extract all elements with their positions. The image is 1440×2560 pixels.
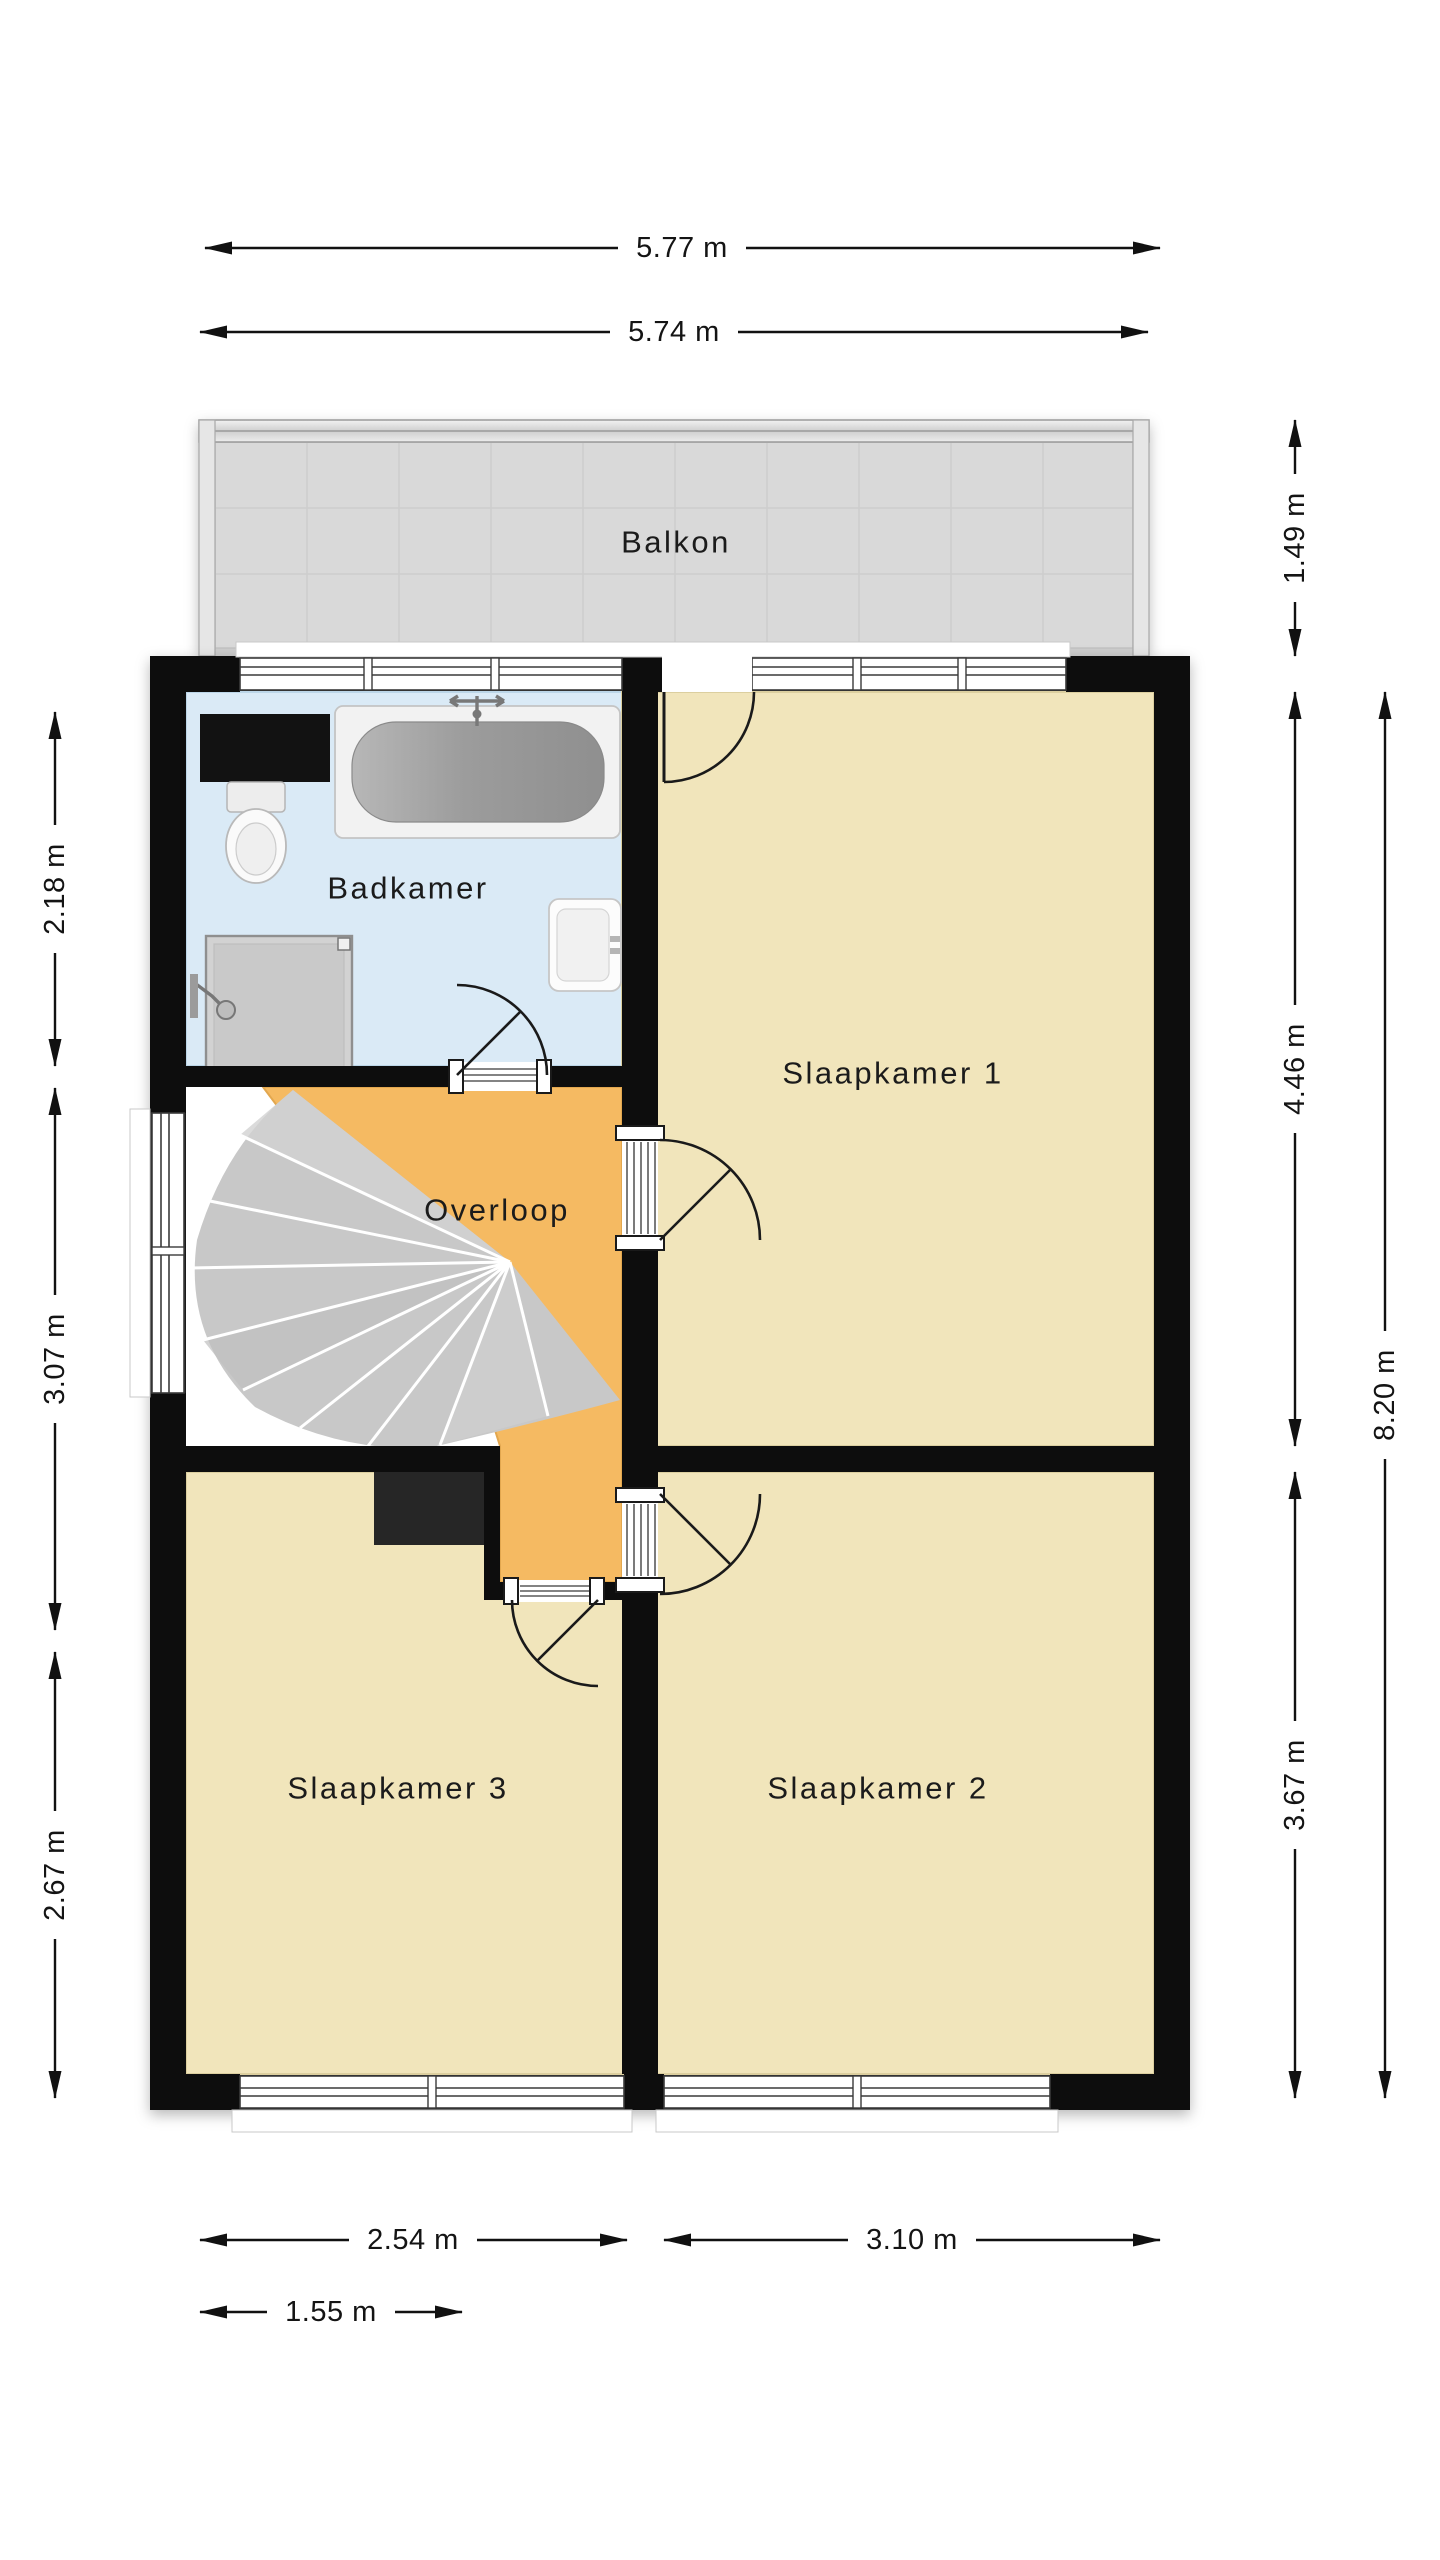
bathroom-counter xyxy=(200,714,330,782)
dimension-bottom-bedroom2: 3.10 m xyxy=(664,2221,1160,2259)
window-bottom-left xyxy=(232,2076,632,2132)
window-top-left xyxy=(240,658,622,690)
window-top-right xyxy=(752,658,1066,690)
dimension-right-bedroom1: 4.46 m xyxy=(1276,692,1314,1446)
dimension-label-bottom-stairwell: 1.55 m xyxy=(285,2296,377,2328)
dimension-left-bedroom3: 2.67 m xyxy=(36,1652,74,2098)
dimension-right-total: 8.20 m xyxy=(1366,692,1404,2098)
dimension-label-right-bedroom2: 3.67 m xyxy=(1279,1739,1311,1831)
floorplan-page: Balkon xyxy=(0,0,1440,2560)
dimension-label-right-balcony: 1.49 m xyxy=(1279,492,1311,584)
dimension-bottom-stairwell: 1.55 m xyxy=(200,2293,462,2331)
window-bottom-right xyxy=(656,2076,1058,2132)
shower-icon xyxy=(190,936,352,1082)
window-sill-top xyxy=(236,642,1070,657)
room-label-bedroom3: Slaapkamer 3 xyxy=(287,1771,508,1806)
dimension-label-top-outer: 5.77 m xyxy=(636,232,728,264)
dimension-label-right-bedroom1: 4.46 m xyxy=(1279,1023,1311,1115)
bathtub-icon xyxy=(335,696,620,838)
toilet-icon xyxy=(226,782,286,883)
room-label-bedroom1: Slaapkamer 1 xyxy=(782,1056,1003,1091)
dimension-right-bedroom2: 3.67 m xyxy=(1276,1472,1314,2098)
room-label-landing: Overloop xyxy=(424,1193,570,1228)
dimension-label-right-total: 8.20 m xyxy=(1369,1349,1401,1441)
dimension-label-bottom-bedroom3: 2.54 m xyxy=(367,2224,459,2256)
dimension-left-bathroom: 2.18 m xyxy=(36,712,74,1066)
dimension-right-balcony: 1.49 m xyxy=(1276,420,1314,656)
floorplan-svg: Balkon xyxy=(0,0,1440,2560)
balcony-rail-left xyxy=(199,420,215,656)
room-label-bedroom2: Slaapkamer 2 xyxy=(767,1771,988,1806)
sink-icon xyxy=(549,899,621,991)
dimension-label-left-bathroom: 2.18 m xyxy=(39,843,71,935)
balcony-rail-right xyxy=(1133,420,1149,656)
dimension-top-inner: 5.74 m xyxy=(200,313,1148,351)
dimension-label-bottom-bedroom2: 3.10 m xyxy=(866,2224,958,2256)
dimension-left-stairs: 3.07 m xyxy=(36,1088,74,1630)
dimension-bottom-bedroom3: 2.54 m xyxy=(200,2221,627,2259)
dimension-label-left-bedroom3: 2.67 m xyxy=(39,1829,71,1921)
room-label-bathroom: Badkamer xyxy=(327,871,488,906)
dimension-top-outer: 5.77 m xyxy=(205,229,1160,267)
balcony-area: Balkon xyxy=(199,420,1149,656)
room-label-balcony: Balkon xyxy=(621,525,731,560)
window-left-stairwell xyxy=(130,1109,184,1397)
dimension-label-left-stairs: 3.07 m xyxy=(39,1313,71,1405)
dimension-label-top-inner: 5.74 m xyxy=(628,316,720,348)
